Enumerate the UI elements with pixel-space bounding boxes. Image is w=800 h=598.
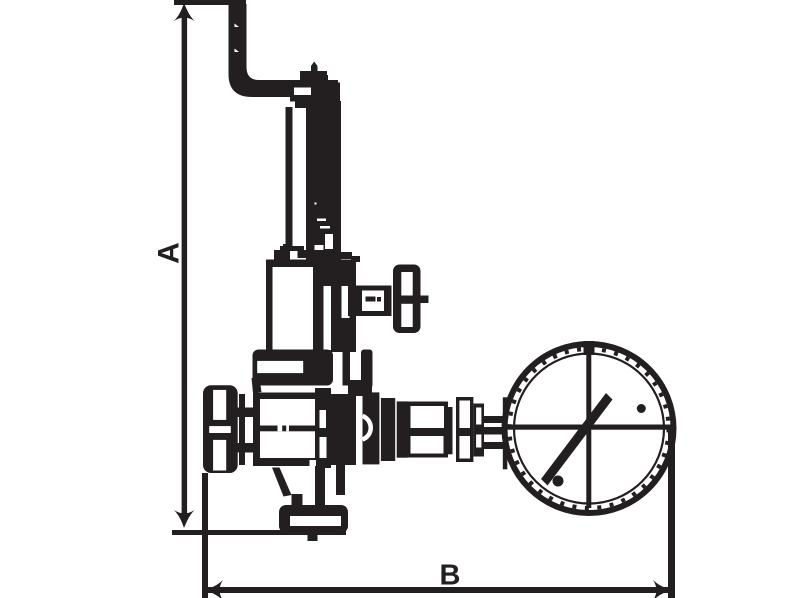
svg-text:A: A	[153, 242, 186, 264]
svg-text:B: B	[440, 560, 461, 592]
